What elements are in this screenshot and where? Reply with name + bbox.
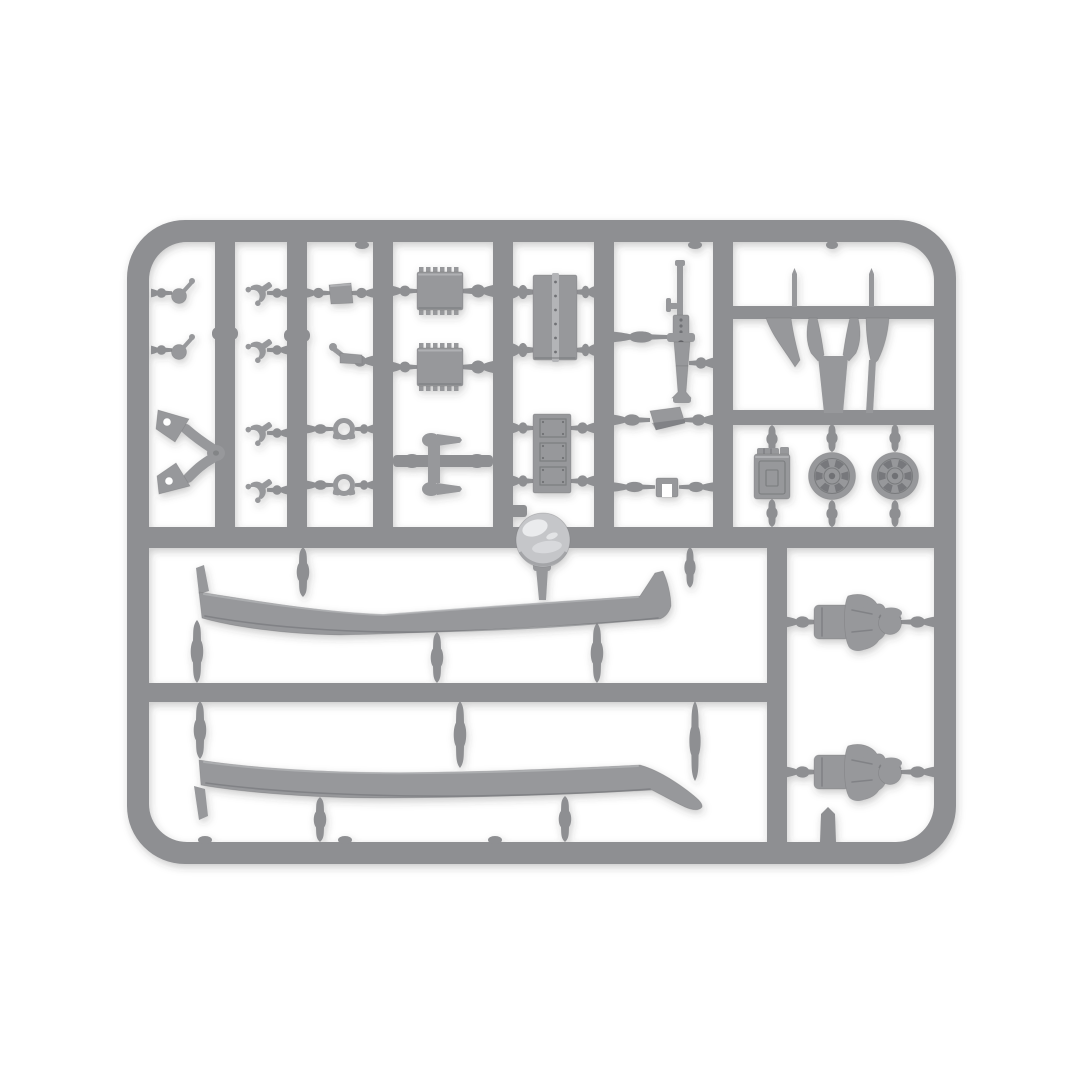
- rail-vertical-1: [215, 242, 235, 548]
- stem: [889, 424, 900, 452]
- gate: [513, 475, 533, 486]
- part-cupola-dome: [516, 513, 570, 600]
- gate: [307, 288, 330, 298]
- gate: [393, 362, 417, 373]
- gate: [513, 422, 533, 433]
- gate-stub: [820, 807, 836, 842]
- gate: [350, 288, 373, 298]
- part-small-box-fitting: [329, 283, 353, 304]
- gate: [393, 286, 417, 297]
- stem: [431, 632, 444, 683]
- part-small-frame-bracket: [656, 478, 678, 497]
- part-ribbed-box-2: [417, 343, 463, 391]
- rail-lower: [149, 683, 778, 702]
- gate: [901, 766, 934, 777]
- gate: [513, 285, 533, 299]
- part-road-wheel-1: [809, 453, 856, 500]
- gate: [787, 616, 818, 627]
- part-road-wheel-2: [872, 453, 919, 500]
- part-clevis-shackles: [244, 275, 277, 504]
- gate: [355, 480, 373, 490]
- gate: [151, 288, 172, 298]
- gate: [307, 424, 334, 434]
- gate: [355, 424, 373, 434]
- gate: [787, 766, 818, 777]
- part-periscope-box: [650, 407, 685, 430]
- photo-canvas: [0, 0, 1080, 1080]
- gate: [689, 357, 713, 368]
- gate: [614, 414, 650, 425]
- sprue-illustration: [0, 0, 1080, 1080]
- part-ring-shackle-1: [332, 421, 355, 440]
- stem: [314, 797, 327, 842]
- part-hatch-door: [533, 273, 577, 362]
- part-fender-bottom: [194, 760, 702, 820]
- stem: [684, 547, 695, 588]
- part-towing-eye-1: [172, 278, 196, 304]
- part-crew-figure-1: [814, 594, 902, 651]
- stem: [194, 701, 207, 759]
- part-machine-gun: [666, 260, 695, 403]
- gate: [614, 331, 668, 342]
- part-hook-bracket: [329, 343, 362, 364]
- stem: [191, 620, 204, 683]
- gate: [267, 485, 287, 495]
- rail-vertical-6: [713, 242, 733, 548]
- gate: [679, 482, 713, 492]
- stem: [826, 500, 837, 527]
- stem: [297, 547, 310, 597]
- gate: [684, 414, 713, 425]
- part-ribbed-box-1: [417, 267, 463, 315]
- gate: [571, 475, 594, 486]
- subrail-blades-top: [723, 306, 934, 319]
- gate: [463, 285, 493, 298]
- gate: [901, 616, 934, 627]
- rail-vertical-3: [373, 242, 393, 548]
- stem: [689, 701, 700, 781]
- rail-vertical-right: [767, 548, 787, 842]
- part-ring-shackle-2: [332, 477, 355, 496]
- stem: [591, 623, 604, 683]
- rail-vertical-2: [287, 242, 307, 548]
- thin-pin: [792, 268, 797, 307]
- stem: [826, 424, 837, 452]
- part-fender-top: [196, 565, 671, 635]
- gate: [577, 286, 594, 298]
- gate: [151, 345, 172, 355]
- gate: [577, 344, 594, 356]
- gate: [513, 343, 533, 357]
- gate: [307, 480, 334, 490]
- part-blade-set: [766, 268, 889, 413]
- stem: [889, 500, 900, 527]
- part-crew-figure-2: [814, 744, 902, 801]
- gate: [571, 422, 594, 433]
- thin-pin: [869, 268, 874, 307]
- rail-vertical-4: [493, 242, 513, 548]
- part-jerry-can: [754, 447, 790, 499]
- part-triple-panel-plate: [533, 414, 571, 493]
- part-v-bracket-arm: [156, 410, 225, 494]
- part-towing-eye-2: [172, 334, 196, 360]
- gate: [267, 288, 287, 298]
- stem: [454, 701, 467, 768]
- gate: [267, 428, 287, 438]
- stem: [766, 499, 777, 527]
- gate: [267, 345, 287, 355]
- gate: [463, 361, 493, 374]
- gate: [614, 482, 655, 492]
- rail-vertical-5: [594, 242, 614, 548]
- stem: [559, 796, 572, 842]
